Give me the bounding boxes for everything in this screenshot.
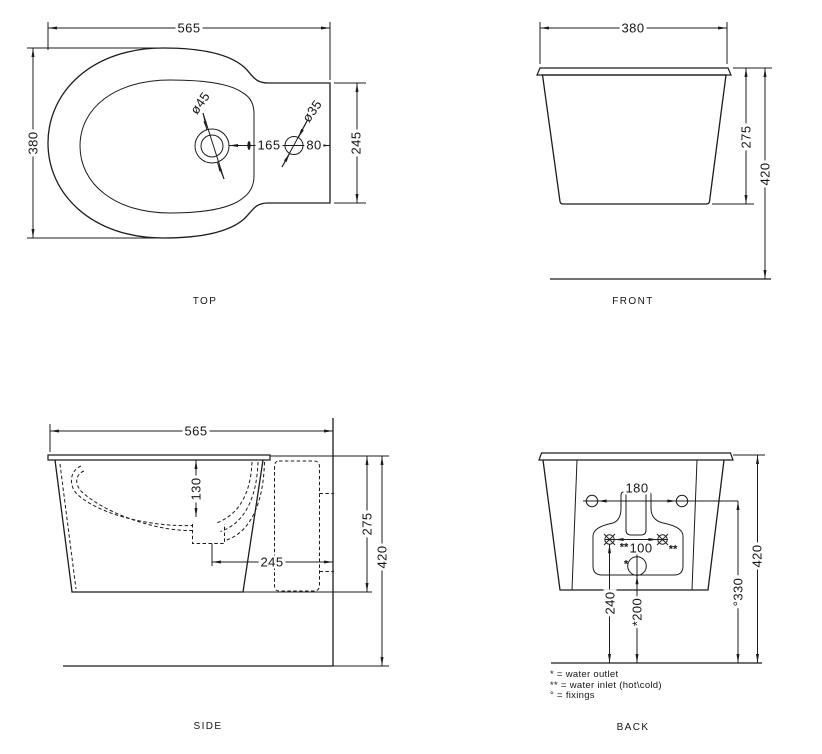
legend-water-inlet: ** = water inlet (hot\cold) <box>550 681 662 691</box>
top-view-lines <box>27 22 366 238</box>
back-view-lines <box>539 453 765 663</box>
side-rim <box>48 455 270 460</box>
side-drain-box <box>193 524 225 544</box>
back-inlet-marker-right: ** <box>669 545 678 556</box>
front-width-dimension: 380 <box>620 22 647 35</box>
side-back-panel <box>275 461 320 591</box>
back-inlet-spacing-dimension: 100 <box>628 542 655 555</box>
side-length-dimension: 565 <box>183 425 210 438</box>
back-inlet-marker-left: ** <box>620 543 629 554</box>
front-body <box>543 75 727 204</box>
side-drain-to-wall-dimension: 245 <box>259 556 286 569</box>
back-outlet-height-dimension: *200 <box>631 596 644 628</box>
drawing-canvas <box>0 0 822 754</box>
back-fixing-height-dimension: °330 <box>732 576 745 609</box>
back-total-height-dimension: 420 <box>751 543 764 570</box>
top-depth-dimension: 380 <box>27 130 40 157</box>
back-slot-inner <box>626 492 646 535</box>
front-total-height-dimension: 420 <box>759 161 772 188</box>
tap-hole-inner <box>201 135 223 157</box>
legend-water-outlet: * = water outlet <box>550 670 618 680</box>
legend-fixings: ° = fixings <box>550 691 595 701</box>
top-spud-height-dimension: 245 <box>350 130 363 157</box>
technical-drawing-sheet: 565 380 ø45 ø35 165 80 245 TOP 380 275 4… <box>0 0 822 754</box>
side-view-lines <box>48 418 389 666</box>
top-outer-outline <box>48 48 330 238</box>
front-view-lines <box>537 22 772 279</box>
back-view-label: BACK <box>617 723 650 733</box>
front-rim <box>537 68 731 75</box>
top-view-label: TOP <box>193 297 218 307</box>
side-view-label: SIDE <box>194 722 223 732</box>
back-body <box>543 460 724 590</box>
back-rim <box>539 453 733 460</box>
back-fixing-spacing-dimension: 180 <box>624 482 651 495</box>
back-outlet-marker: * <box>624 560 628 571</box>
front-view-label: FRONT <box>612 297 653 307</box>
side-basin-depth-dimension: 130 <box>190 476 203 503</box>
back-mounting-panel <box>593 492 683 575</box>
tap-hole-outer <box>195 129 229 163</box>
side-body-height-dimension: 275 <box>361 511 374 538</box>
front-body-height-dimension: 275 <box>740 124 753 151</box>
top-hole-spacing-dimension: 165 <box>256 139 283 152</box>
top-inner-rim <box>80 80 254 213</box>
top-width-dimension: 565 <box>176 22 203 35</box>
back-inlet-height-dimension: 240 <box>603 590 616 617</box>
side-total-height-dimension: 420 <box>376 544 389 571</box>
top-hole-edge-dimension: 80 <box>304 138 323 151</box>
